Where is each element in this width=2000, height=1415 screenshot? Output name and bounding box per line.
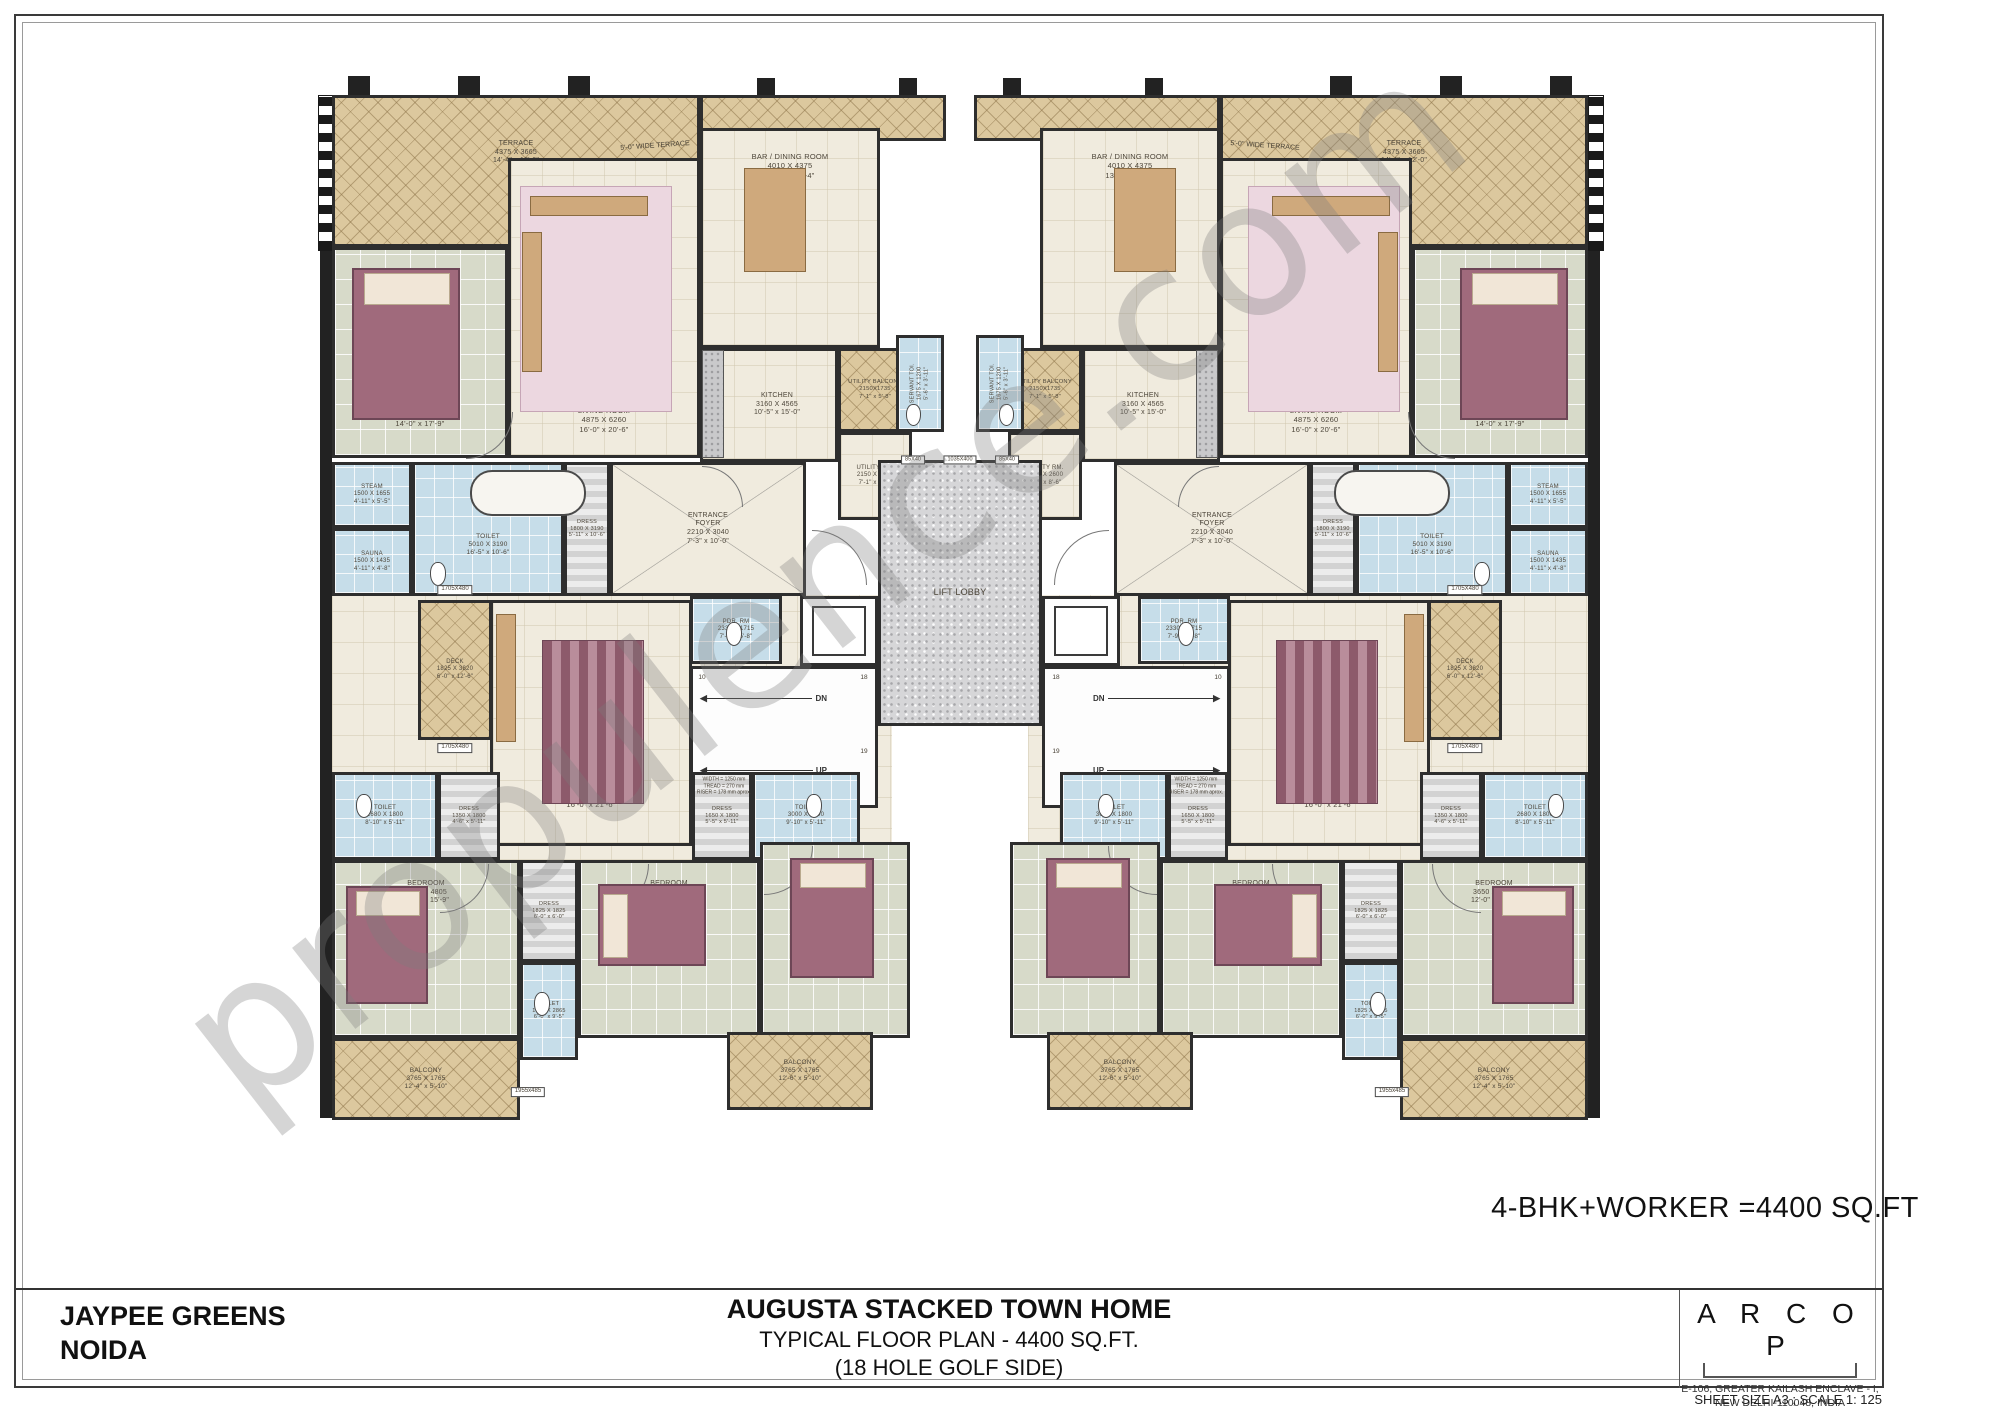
wood-furniture-6	[522, 232, 542, 372]
stair-arrow-up-m: UP▶	[1090, 764, 1220, 776]
left-unit-dress-left: DRESS1350 X 18004'-6" x 5'-11"	[438, 772, 500, 860]
wood-furniture-6-m	[1378, 232, 1398, 372]
ledge: 1955x485	[511, 1087, 545, 1097]
stair-arrow-part	[707, 770, 813, 771]
drawing-sheet: TERRACE4375 X 366514'-4" x 12'-0"TERRACE…	[0, 0, 2000, 1415]
door-arc-1-m	[1054, 530, 1109, 585]
right-utility-balcony-label: UTILITY BALCONY2150X17357'-1" x 5'-8"	[1018, 379, 1072, 401]
wc-furniture-18	[906, 404, 921, 426]
left-unit-deck: DECK1825 X 38206'-0" x 12'-6"	[418, 600, 492, 740]
bed-pillow	[800, 863, 866, 888]
right-unit-toilet-left: TOILET2680 X 18008'-10" x 5'-11"	[1482, 772, 1588, 860]
stair-arrow-part: DN	[812, 694, 830, 703]
right-unit-dress-left: DRESS1350 X 18004'-6" x 5'-11"	[1420, 772, 1482, 860]
counter-furniture-11-m	[1196, 350, 1218, 458]
bed-pillow	[1472, 273, 1557, 305]
wc-furniture-16	[806, 794, 822, 818]
stair-arrow-part: ▶	[1213, 766, 1220, 775]
left-master-dress-label: DRESS1800 X 31905'-11" x 10'-6"	[569, 519, 605, 540]
right-master-toilet-label: TOILET5010 X 319016'-5" x 10'-6"	[1411, 533, 1454, 557]
checker-band-0-m	[1588, 95, 1604, 251]
wc-furniture-15-m	[1548, 794, 1564, 818]
tub-furniture-9	[470, 470, 586, 516]
right-dress-mid-label: DRESS1650 X 18005'-5" x 5'-11"	[1181, 806, 1214, 827]
ledge-m: 1955x485	[1375, 1087, 1409, 1097]
right-steam-label: STEAM1500 X 16554'-11" x 5'-5"	[1530, 484, 1566, 507]
bed-furniture-2-m	[1214, 884, 1322, 966]
left-deck-label: DECK1825 X 38206'-0" x 12'-6"	[437, 659, 473, 682]
shaft-b: 1035X400	[943, 455, 976, 464]
stair-arrow-dn-m: DN▶	[1090, 692, 1220, 704]
bed-furniture-0-m	[1460, 268, 1568, 420]
left-unit-lift-lobby: LIFT LOBBY	[878, 460, 1042, 726]
sheet-size-note: SHEET SIZE A3 ; SCALE 1: 125	[1694, 1392, 1882, 1407]
right-unit-sauna: SAUNA1500 X 14354'-11" x 4'-8"	[1508, 528, 1588, 596]
wood-furniture-8	[496, 614, 516, 742]
wood-furniture-10	[744, 168, 806, 272]
left-master-toilet-label: TOILET5010 X 319016'-5" x 10'-6"	[467, 533, 510, 557]
bed-pillow	[1292, 894, 1317, 958]
wc-furniture-14	[726, 622, 742, 646]
wc-furniture-14-m	[1178, 622, 1194, 646]
right-unit-deck: DECK1825 X 38206'-0" x 12'-6"	[1428, 600, 1502, 740]
right-unit-steam: STEAM1500 X 16554'-11" x 5'-5"	[1508, 462, 1588, 528]
left-unit-balcony-2: BALCONY3765 X 176512'-6" x 5'-10"	[727, 1032, 873, 1110]
unit-area-note: 4-BHK+WORKER =4400 SQ.FT	[1490, 1192, 1920, 1225]
stair-arrow-part: UP	[813, 766, 830, 775]
planter-top-m: 1705X480	[1447, 585, 1482, 595]
right-dress-left-label: DRESS1350 X 18004'-6" x 5'-11"	[1434, 806, 1467, 827]
wood-furniture-10-m	[1114, 168, 1176, 272]
right-balcony-1-label: BALCONY3765 X 176512'-4" x 5'-10"	[1473, 1067, 1516, 1091]
stair-num-10: 10	[698, 674, 705, 682]
right-dress-bed-label: DRESS1825 X 18256'-0" x 6'-0"	[1354, 901, 1387, 922]
wall-pier-0	[320, 249, 332, 1118]
wc-furniture-17-m	[1370, 992, 1386, 1016]
architect-logo-bracket	[1703, 1363, 1857, 1378]
bed-furniture-1-m	[1492, 886, 1574, 1004]
left-steam-label: STEAM1500 X 16554'-11" x 5'-5"	[354, 484, 390, 507]
stair-arrow-part	[1108, 698, 1214, 699]
stair-arrow-part	[1107, 770, 1213, 771]
wc-furniture-18-m	[999, 404, 1014, 426]
left-utility-balcony-label: UTILITY BALCONY2150X17357'-1" x 5'-8"	[848, 379, 902, 401]
stair-num-19: 19	[860, 748, 867, 756]
door-arc-1	[812, 530, 867, 585]
stair-arrow-up: ◀UP	[700, 764, 830, 776]
left-balcony-1-label: BALCONY3765 X 176512'-4" x 5'-10"	[405, 1067, 448, 1091]
wood-furniture-5	[530, 196, 648, 216]
planter-bottom: 1705X480	[437, 743, 472, 753]
left-unit-toilet-left: TOILET2680 X 18008'-10" x 5'-11"	[332, 772, 438, 860]
planter-top: 1705X480	[437, 585, 472, 595]
stair-note-m: WIDTH = 1250 mmTREAD = 270 mmRISER = 178…	[1169, 776, 1223, 796]
left-sauna-label: SAUNA1500 X 14354'-11" x 4'-8"	[354, 551, 390, 574]
right-unit-dress-bed: DRESS1825 X 18256'-0" x 6'-0"	[1342, 860, 1400, 962]
stair-note: WIDTH = 1250 mmTREAD = 270 mmRISER = 178…	[697, 776, 751, 796]
drawing-title-sub2: (18 HOLE GOLF SIDE)	[16, 1355, 1882, 1381]
shaft-a: 85X40	[901, 455, 925, 464]
bed-furniture-1	[346, 886, 428, 1004]
stair-arrow-part: ◀	[700, 694, 707, 703]
bed-pillow	[364, 273, 449, 305]
wc-furniture-16-m	[1098, 794, 1114, 818]
right-master-dress-label: DRESS1800 X 31905'-11" x 10'-6"	[1315, 519, 1351, 540]
liftcar-furniture-12-m	[1054, 606, 1108, 656]
drawing-title-sub1: TYPICAL FLOOR PLAN - 4400 SQ.FT.	[16, 1327, 1882, 1353]
bed-furniture-3	[790, 858, 874, 978]
rugpink-furniture-4	[520, 186, 672, 412]
right-kitchen-label: KITCHEN3160 X 456510'-5" x 15'-0"	[1120, 392, 1166, 418]
wood-furniture-8-m	[1404, 614, 1424, 742]
left-balcony-2-label: BALCONY3765 X 176512'-6" x 5'-10"	[779, 1059, 822, 1083]
bed-pillow	[356, 891, 420, 916]
right-sauna-label: SAUNA1500 X 14354'-11" x 4'-8"	[1530, 551, 1566, 574]
stair-arrow-dn: ◀DN	[700, 692, 830, 704]
right-balcony-2-label: BALCONY3765 X 176512'-6" x 5'-10"	[1099, 1059, 1142, 1083]
bed-furniture-0	[352, 268, 460, 420]
wood-furniture-5-m	[1272, 196, 1390, 216]
left-dress-bed-label: DRESS1825 X 18256'-0" x 6'-0"	[532, 901, 565, 922]
left-unit-balcony-1: BALCONY3765 X 176512'-4" x 5'-10"	[332, 1038, 520, 1120]
stair-arrow-part: DN	[1090, 694, 1108, 703]
stair-num-18: 18	[860, 674, 867, 682]
stair-arrow-part	[707, 698, 813, 699]
stair-num-19-m: 19	[1052, 748, 1059, 756]
rugstripe-furniture-7	[542, 640, 644, 804]
right-unit-balcony-1: BALCONY3765 X 176512'-4" x 5'-10"	[1400, 1038, 1588, 1120]
left-unit-dress-bed: DRESS1825 X 18256'-0" x 6'-0"	[520, 860, 578, 962]
floor-plan: TERRACE4375 X 366514'-4" x 12'-0"TERRACE…	[0, 0, 2000, 1290]
stair-arrow-part: UP	[1090, 766, 1107, 775]
bed-pillow	[1502, 891, 1566, 916]
wc-furniture-13-m	[1474, 562, 1490, 586]
rugstripe-furniture-7-m	[1276, 640, 1378, 804]
drawing-title: AUGUSTA STACKED TOWN HOME TYPICAL FLOOR …	[16, 1294, 1882, 1381]
stair-num-10-m: 10	[1214, 674, 1221, 682]
wc-furniture-17	[534, 992, 550, 1016]
right-entrance-foyer-label: ENTRANCEFOYER2210 X 30407'-3" x 10'-0"	[1191, 512, 1233, 547]
architect-block: A R C O P E-106, GREATER KAILASH ENCLAVE…	[1679, 1290, 1880, 1388]
tub-furniture-9-m	[1334, 470, 1450, 516]
left-unit-sauna: SAUNA1500 X 14354'-11" x 4'-8"	[332, 528, 412, 596]
left-unit-toilet-bed: TOILET1825 X 28656'-0" x 9'-5"	[520, 962, 578, 1060]
right-servant-toilet-label: SERVANT TOI.1675 X 12005'-6" x 3'-11"	[990, 364, 1011, 404]
stair-arrow-part: ▶	[1213, 694, 1220, 703]
stair-arrow-part: ◀	[700, 766, 707, 775]
shaft-c: 85X40	[995, 455, 1019, 464]
bed-furniture-2	[598, 884, 706, 966]
left-lift-lobby-label: LIFT LOBBY	[934, 587, 987, 598]
left-kitchen-label: KITCHEN3160 X 456510'-5" x 15'-0"	[754, 392, 800, 418]
left-entrance-foyer-label: ENTRANCEFOYER2210 X 30407'-3" x 10'-0"	[687, 512, 729, 547]
title-block: JAYPEE GREENS NOIDA AUGUSTA STACKED TOWN…	[16, 1288, 1882, 1386]
wc-furniture-13	[430, 562, 446, 586]
stair-num-18-m: 18	[1052, 674, 1059, 682]
architect-logo: A R C O P	[1680, 1298, 1880, 1362]
counter-furniture-11	[702, 350, 724, 458]
left-dress-mid-label: DRESS1650 X 18005'-5" x 5'-11"	[705, 806, 738, 827]
right-unit-balcony-2: BALCONY3765 X 176512'-6" x 5'-10"	[1047, 1032, 1193, 1110]
left-unit-steam: STEAM1500 X 16554'-11" x 5'-5"	[332, 462, 412, 528]
drawing-title-main: AUGUSTA STACKED TOWN HOME	[16, 1294, 1882, 1325]
bed-furniture-3-m	[1046, 858, 1130, 978]
left-dress-left-label: DRESS1350 X 18004'-6" x 5'-11"	[452, 806, 485, 827]
liftcar-furniture-12	[812, 606, 866, 656]
left-servant-toilet-label: SERVANT TOI.1675 X 12005'-6" x 3'-11"	[910, 364, 931, 404]
wc-furniture-15	[356, 794, 372, 818]
bed-pillow	[603, 894, 628, 958]
wall-pier-0-m	[1588, 249, 1600, 1118]
planter-bottom-m: 1705X480	[1447, 743, 1482, 753]
right-deck-label: DECK1825 X 38206'-0" x 12'-6"	[1447, 659, 1483, 682]
bed-pillow	[1056, 863, 1122, 888]
